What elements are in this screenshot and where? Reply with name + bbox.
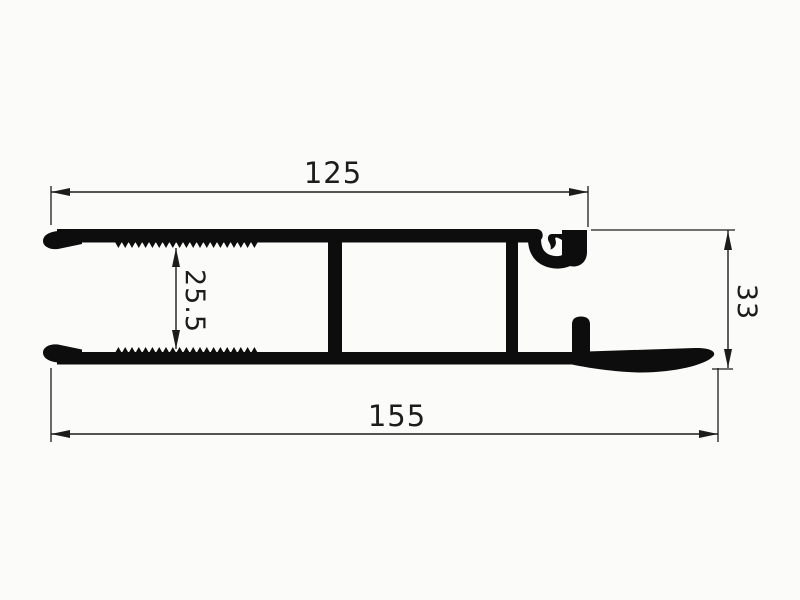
profile-bottom-flange bbox=[57, 352, 582, 365]
arrow-down-icon bbox=[724, 349, 732, 368]
profile-web-left bbox=[328, 240, 342, 354]
dimension-top-width-label: 125 bbox=[304, 156, 362, 190]
profile-section bbox=[43, 229, 714, 372]
profile-channel-limb bbox=[562, 230, 587, 267]
profile-channel-finger bbox=[548, 234, 562, 250]
dimension-overall-height: 33 bbox=[591, 230, 762, 369]
arrow-right-icon bbox=[699, 430, 718, 438]
profile-bottom-wing bbox=[572, 348, 714, 372]
technical-drawing-canvas: 125 25.5 33 155 bbox=[0, 0, 800, 600]
arrow-up-icon bbox=[172, 248, 180, 267]
arrow-right-icon bbox=[569, 188, 588, 196]
bottom-flange-serration bbox=[115, 347, 258, 353]
arrow-left-icon bbox=[51, 188, 70, 196]
profile-web-right bbox=[506, 240, 518, 354]
profile-bottom-flange-nose bbox=[43, 344, 82, 364]
profile-top-flange-nose bbox=[43, 229, 82, 249]
arrow-up-icon bbox=[724, 231, 732, 250]
profile-snap-stub bbox=[572, 317, 590, 354]
dimension-overall-width-label: 155 bbox=[368, 399, 426, 433]
dimension-overall-height-label: 33 bbox=[731, 284, 762, 320]
profile-drawing: 125 25.5 33 155 bbox=[0, 0, 800, 600]
dimension-overall-width: 155 bbox=[51, 368, 718, 442]
arrow-down-icon bbox=[172, 330, 180, 349]
arrow-left-icon bbox=[51, 430, 70, 438]
top-flange-serration bbox=[115, 242, 258, 248]
dimension-top-width: 125 bbox=[51, 156, 588, 227]
profile-top-flange bbox=[57, 229, 543, 243]
dimension-clamp-gap-label: 25.5 bbox=[179, 269, 210, 333]
dimension-clamp-gap: 25.5 bbox=[172, 248, 210, 349]
